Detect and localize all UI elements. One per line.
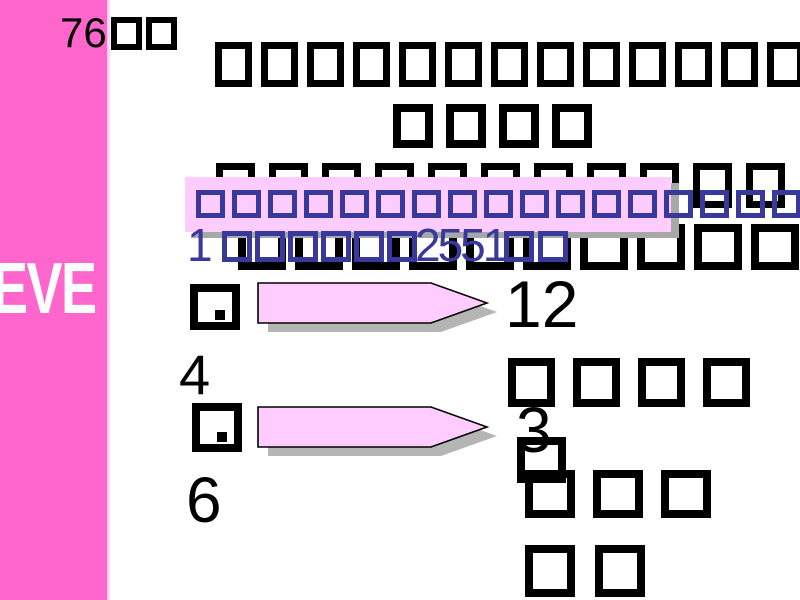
missing-glyph-box <box>146 17 177 50</box>
missing-glyph-box <box>261 42 298 87</box>
missing-glyph-box <box>222 231 252 262</box>
missing-glyph-box <box>664 190 693 218</box>
missing-glyph-box <box>445 42 482 87</box>
missing-glyph-box <box>520 190 549 218</box>
missing-glyph-box <box>595 545 645 597</box>
sidebar-label: EVE <box>0 253 96 325</box>
missing-glyph-box <box>661 470 711 518</box>
missing-glyph-box <box>721 42 758 87</box>
missing-glyph-box <box>592 190 621 218</box>
missing-glyph-box <box>393 104 433 148</box>
missing-glyph-box <box>255 231 285 262</box>
missing-glyph-box <box>628 190 657 218</box>
missing-glyph-box <box>556 190 585 218</box>
missing-glyph-box <box>232 190 261 218</box>
missing-glyph-box <box>268 190 297 218</box>
missing-glyph-box <box>307 42 344 87</box>
missing-glyph-box <box>215 42 252 87</box>
list-item-2-marker: . <box>192 403 242 452</box>
missing-glyph-box <box>525 545 575 597</box>
missing-glyph-box <box>376 190 405 218</box>
arrow-shape-1 <box>256 275 501 345</box>
missing-glyph-box <box>525 470 575 518</box>
missing-glyph-box <box>412 190 441 218</box>
arrow-shape-2 <box>256 399 501 469</box>
result-text-line-4 <box>525 470 711 518</box>
result-text-line-5 <box>525 545 645 597</box>
missing-glyph-box <box>321 231 351 262</box>
missing-glyph-box <box>583 42 620 87</box>
missing-glyph-box <box>767 42 800 87</box>
list-item-1-marker: . <box>190 284 240 330</box>
title-line-1 <box>215 42 800 87</box>
missing-glyph-box <box>537 42 574 87</box>
title-line-2 <box>393 104 592 148</box>
missing-glyph-box <box>694 224 742 270</box>
arrow-2-label-text <box>111 17 177 50</box>
missing-glyph-box <box>499 104 539 148</box>
list-item-1-value: 4 <box>179 347 210 403</box>
date-day: 1 <box>187 222 213 268</box>
missing-glyph-box <box>354 231 384 262</box>
missing-glyph-box <box>700 190 729 218</box>
arrow-2-number: 76 <box>60 12 107 54</box>
highlighted-text-line <box>196 190 800 218</box>
missing-glyph-box <box>446 104 486 148</box>
missing-glyph-box <box>552 104 592 148</box>
date-suffix-text <box>504 231 568 262</box>
presentation-slide: EVE 1 2551 . 4 . 6 76 12 3 <box>0 0 800 600</box>
missing-glyph-box <box>340 190 369 218</box>
missing-glyph-box <box>703 358 750 407</box>
missing-glyph-box <box>538 231 568 262</box>
missing-glyph-box <box>484 190 513 218</box>
arrow-2-label: 76 <box>60 12 177 54</box>
missing-glyph-box <box>448 190 477 218</box>
missing-glyph-box <box>772 190 800 218</box>
date-year: 2551 <box>415 222 505 268</box>
result-number-12: 12 <box>505 271 578 337</box>
sidebar-bar: EVE <box>0 0 110 600</box>
list-item-2-period: . <box>217 432 227 442</box>
missing-glyph-box <box>675 42 712 87</box>
missing-glyph-box <box>736 190 765 218</box>
missing-glyph-box <box>491 42 528 87</box>
missing-glyph-box <box>593 470 643 518</box>
date-month-text <box>222 231 417 262</box>
missing-glyph-box <box>111 17 142 50</box>
missing-glyph-box <box>751 224 799 270</box>
missing-glyph-box <box>387 231 417 262</box>
missing-glyph-box <box>573 358 620 407</box>
result-number-3: 3 <box>516 398 552 462</box>
missing-glyph-box <box>196 190 225 218</box>
list-item-2-value: 6 <box>186 468 222 532</box>
missing-glyph-box <box>638 358 685 407</box>
missing-glyph-box <box>288 231 318 262</box>
missing-glyph-box <box>399 42 436 87</box>
missing-glyph-box <box>304 190 333 218</box>
missing-glyph-box <box>504 231 534 262</box>
list-item-1-period: . <box>215 310 225 320</box>
missing-glyph-box <box>629 42 666 87</box>
missing-glyph-box <box>353 42 390 87</box>
